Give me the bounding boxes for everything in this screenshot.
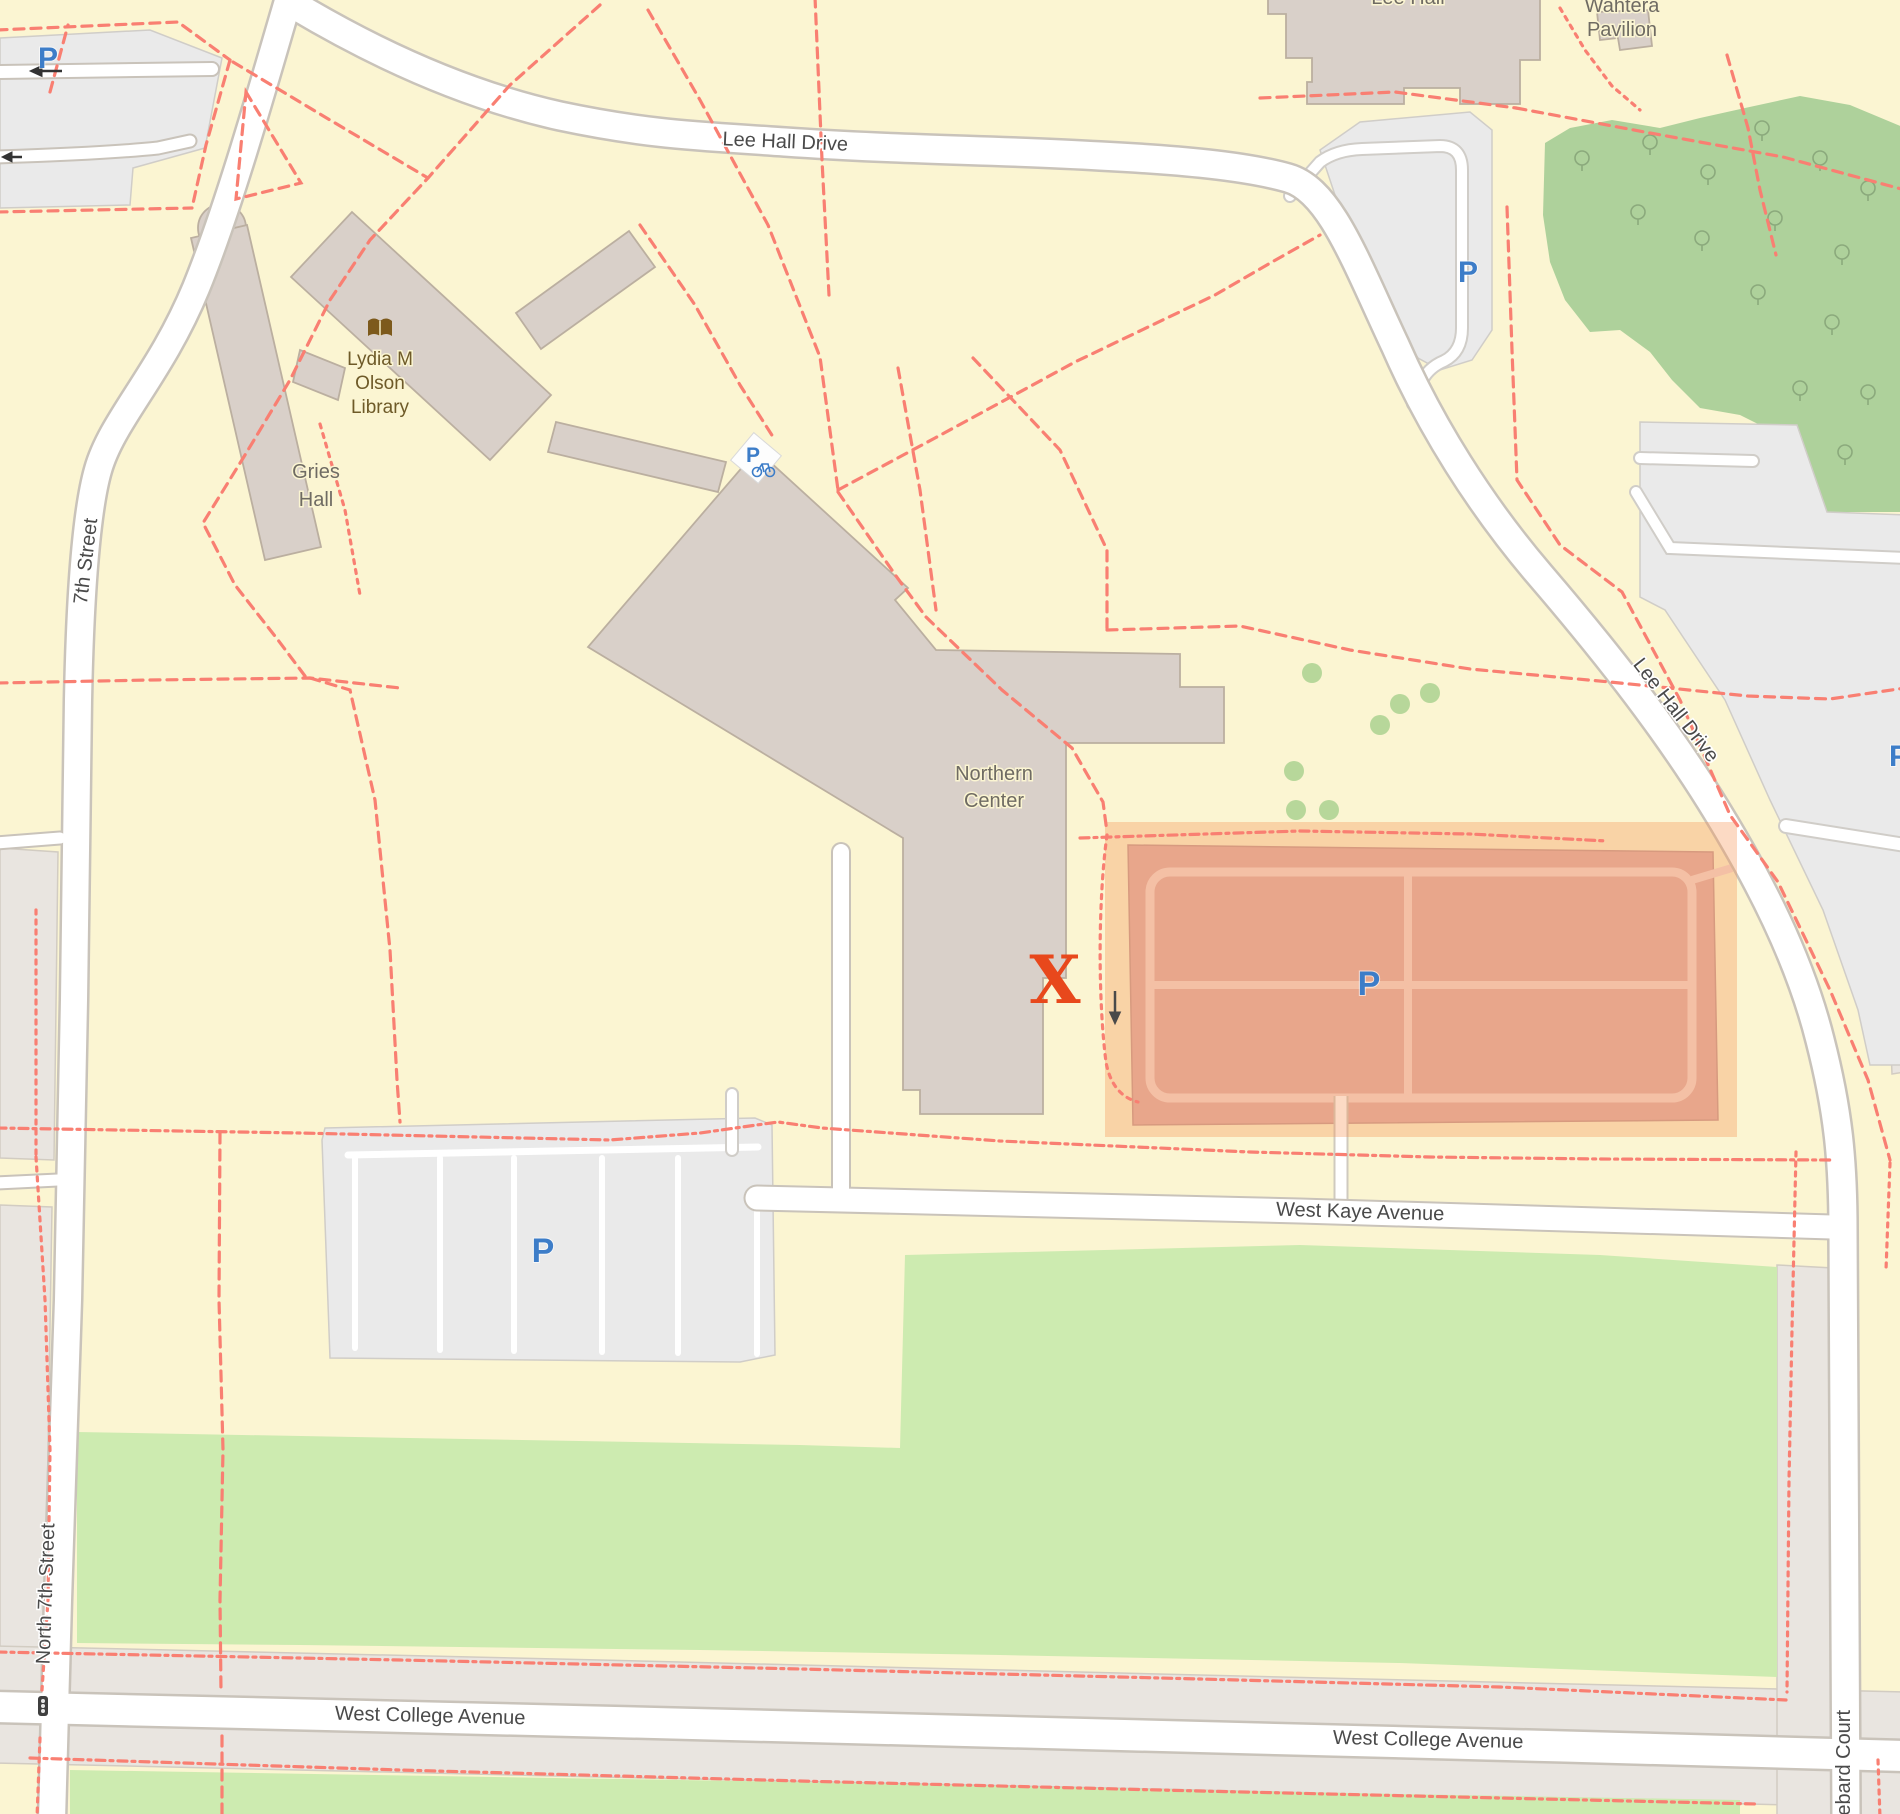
road-west-branch-1 bbox=[0, 838, 60, 843]
map-canvas[interactable]: Lee Hall Drive Lee Hall Drive 7th Street… bbox=[0, 0, 1900, 1814]
highlighted-parking-overlay bbox=[1105, 822, 1737, 1137]
parking-icon-edge: P bbox=[1889, 740, 1900, 773]
label-northern-center-line2: Center bbox=[964, 790, 1024, 812]
label-west-college-avenue-east: West College Avenue bbox=[1333, 1727, 1524, 1753]
map-svg[interactable]: Lee Hall Drive Lee Hall Drive 7th Street… bbox=[0, 0, 1900, 1814]
road-west-branch-2 bbox=[0, 1180, 58, 1183]
landuse-left-block-1 bbox=[0, 848, 58, 1160]
parking-icon-nw: P bbox=[38, 42, 58, 75]
label-lee-hall: Lee Hall bbox=[1371, 0, 1444, 9]
east-lot-road-1 bbox=[1640, 458, 1753, 461]
parking-icon-highlight: P bbox=[1358, 965, 1381, 1003]
book-icon bbox=[368, 319, 392, 337]
label-library-line1: Lydia M bbox=[347, 349, 413, 370]
label-library-line2: Olson bbox=[355, 373, 405, 394]
parking-icon-west: P bbox=[532, 1232, 555, 1270]
label-gries-line1: Gries bbox=[292, 461, 340, 483]
label-west-college-avenue-west: West College Avenue bbox=[335, 1703, 526, 1730]
label-west-kaye-avenue: West Kaye Avenue bbox=[1276, 1199, 1445, 1226]
label-wahtera-line1: Wahtera bbox=[1585, 0, 1661, 17]
parking-icon-loop: P bbox=[1458, 256, 1478, 289]
bicycle-parking-p: P bbox=[746, 444, 760, 467]
label-hebard-court: Hebard Court bbox=[1833, 1710, 1855, 1814]
building-lee-hall bbox=[1268, 0, 1540, 104]
label-gries-line2: Hall bbox=[299, 489, 333, 511]
landuse-hebard-west-strip bbox=[1777, 1265, 1833, 1814]
label-northern-center-line1: Northern bbox=[955, 763, 1033, 785]
label-wahtera-line2: Pavilion bbox=[1587, 19, 1657, 41]
label-library-line3: Library bbox=[351, 397, 410, 418]
traffic-signal-icon bbox=[38, 1696, 48, 1716]
x-marker: X bbox=[1029, 941, 1081, 1019]
